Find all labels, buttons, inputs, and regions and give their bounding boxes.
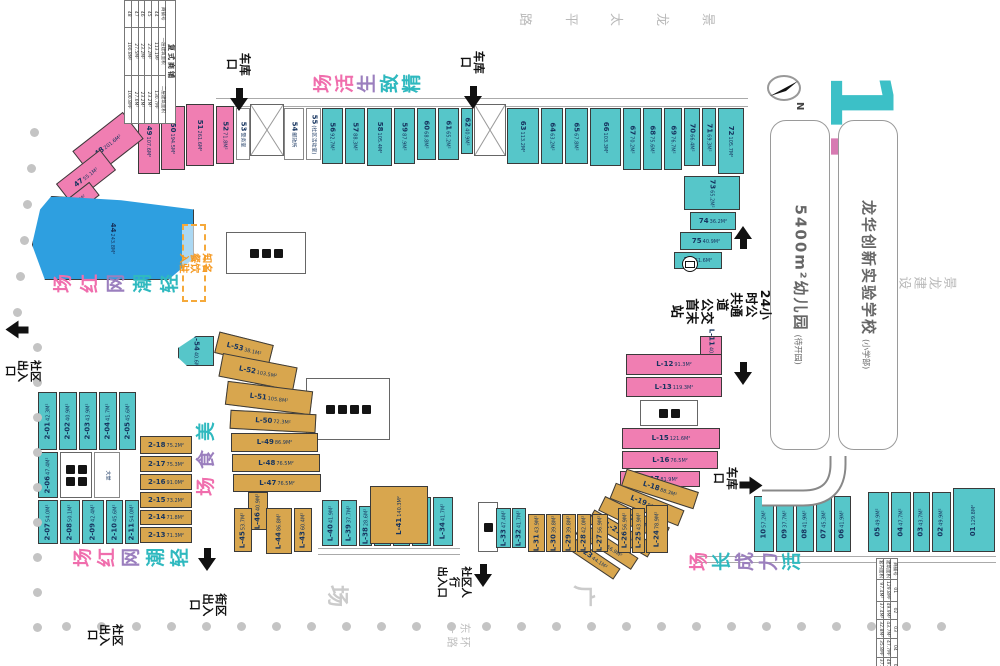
street-tree-dot — [412, 622, 421, 631]
unit-label: L-2939.8M² — [566, 515, 573, 551]
garage-entrance-label-1: 车库口 — [224, 42, 252, 86]
unit-65[interactable]: 6567.8M² — [565, 108, 588, 164]
unit-73[interactable]: 7365.2M² — [684, 176, 740, 210]
unit-61[interactable]: 6165.2M² — [438, 108, 459, 160]
unit-66[interactable]: 66103.3M² — [590, 108, 621, 166]
unit-56[interactable]: 5692.7M² — [322, 108, 343, 164]
street-tree-dot — [902, 622, 911, 631]
unit-63[interactable]: 63113.2M² — [507, 108, 539, 164]
unit-label: L-52103.5M² — [238, 365, 277, 379]
unit-62[interactable]: 6240.9M² — [461, 108, 473, 154]
unit-2-14[interactable]: 2-1471.8M² — [140, 510, 192, 525]
unit-label: L-4640.9M² — [255, 493, 262, 529]
unit-label: 0745.3M² — [821, 510, 828, 538]
unit-59[interactable]: 5987.9M² — [394, 108, 415, 164]
compass-icon: N — [764, 70, 808, 114]
unit-label: L-4553.7M² — [240, 512, 247, 548]
theme-label-jingzhi-shenghuo: 精致生活场 — [314, 70, 422, 96]
unit-04[interactable]: 0447.7M² — [891, 492, 911, 552]
unit-L-31[interactable]: L-3143.9M² — [528, 514, 545, 552]
street-tree-dot — [552, 622, 561, 631]
unit-2-11[interactable]: 2-1154.0M² — [125, 500, 139, 544]
unit-label: 7540.9M² — [692, 238, 720, 245]
unit-L-45[interactable]: L-4553.7M² — [234, 508, 252, 552]
unit-label: L-3143.9M² — [533, 515, 540, 551]
unit-label: 58105.4M² — [376, 121, 383, 152]
theme-label-qingchao-wanghong-top: 轻潮网红场 — [54, 270, 180, 296]
unit-2-17[interactable]: 2-1775.3M² — [140, 456, 192, 472]
garage-arrow-down-2 — [464, 86, 482, 109]
street-tree-dot — [762, 622, 771, 631]
unit-label: 2-1691.0M² — [148, 479, 184, 486]
unit-71[interactable]: 7169.3M² — [702, 108, 716, 166]
unit-label: 7436.2M² — [699, 218, 727, 225]
unit-L-39[interactable]: L-3937.7M² — [341, 500, 357, 546]
unit-05[interactable]: 0549.9M² — [868, 492, 889, 552]
unit-label: L-2478.9M² — [654, 511, 661, 547]
unit-2-16[interactable]: 2-1691.0M² — [140, 474, 192, 490]
kindergarten-building: 5400m²幼儿园(待开园) — [770, 120, 830, 450]
plaza-char-2: 广 — [569, 585, 601, 607]
unit-60[interactable]: 6068.8M² — [417, 108, 436, 160]
unit-52[interactable]: 5271.8M² — [216, 106, 234, 164]
unit-label: 7066.4M² — [689, 123, 696, 151]
unit-label: 2-0545.6M² — [124, 403, 131, 439]
unit-2-13[interactable]: 2-1371.3M² — [140, 527, 192, 543]
garage-entrance-label-3: 车库口 — [712, 456, 738, 500]
unit-label: 54邮政所 — [291, 121, 298, 147]
street-tree-dot — [622, 622, 631, 631]
theme-label-huoli-chengzhang: 活力成长场 — [690, 548, 802, 574]
unit-label: 6567.8M² — [573, 122, 580, 150]
street-exit-arrow — [198, 548, 216, 571]
unit-55[interactable]: 55(社区活动室) — [306, 108, 321, 160]
street-tree-dot — [692, 622, 701, 631]
unit-label: 51261.6M² — [197, 119, 204, 150]
unit-68[interactable]: 6875.6M² — [643, 108, 662, 170]
unit-label: 0549.9M² — [875, 508, 882, 536]
unit-label: 0249.9M² — [938, 508, 945, 536]
unit-label: L-4986.9M² — [257, 439, 293, 446]
floor-plan-canvas: 景龙太平路 景龙建设路 东环一路 场 广 1F N 5400m²幼儿园(待开园)… — [0, 0, 1000, 666]
unit-03[interactable]: 0343.7M² — [913, 492, 930, 552]
unit-2-05[interactable]: 2-0545.6M² — [119, 392, 136, 450]
unit-label: 53警务室 — [240, 121, 247, 147]
unit-大堂[interactable]: 大堂 — [94, 452, 120, 498]
unit-L-49[interactable]: L-4986.9M² — [231, 433, 318, 452]
restaurant-callout: 知名餐饮入驻 — [182, 224, 206, 302]
unit-label: L-3039.8M² — [550, 515, 557, 551]
unit-67[interactable]: 6770.2M² — [623, 108, 641, 170]
bus-terminal-label: 公交首末站 — [676, 274, 704, 348]
unit-L-27[interactable]: L-2756.9M² — [592, 514, 608, 552]
unit-label: 7365.2M² — [708, 179, 715, 207]
unit-72[interactable]: 72105.7M² — [718, 108, 744, 174]
street-tree-dot — [657, 622, 666, 631]
unit-label: L-13119.3M² — [655, 384, 694, 391]
street-tree-dot — [20, 236, 29, 245]
unit-label: 2-1154.0M² — [129, 504, 136, 540]
unit-01[interactable]: 01129.8M² — [953, 488, 995, 552]
unit-label: 2-1045.6M² — [111, 504, 118, 540]
street-tree-dot — [33, 518, 42, 527]
unit-label: L-3441.7M² — [440, 504, 447, 540]
unit-L-54[interactable]: L-5440.6M² — [178, 336, 214, 366]
street-tree-dot — [33, 448, 42, 457]
unit-L-43[interactable]: L-4360.4M² — [294, 508, 312, 552]
unit-label: 44243.8M² — [109, 222, 116, 253]
unit-69[interactable]: 6976.7M² — [664, 108, 682, 170]
bus-terminal-icon — [682, 256, 698, 272]
garage-ramp-duct — [758, 452, 868, 510]
street-tree-dot — [33, 588, 42, 597]
unit-label: 2-0647.4M² — [45, 457, 52, 493]
community-exit-left-arrow — [6, 321, 29, 339]
unit-L-28[interactable]: L-2842.0M² — [577, 514, 591, 552]
unit-label: L-1676.5M² — [652, 457, 688, 464]
passage-24h-label: 24小时公共通道 — [728, 250, 758, 360]
community-exit-bottom-label: 社区出入口 — [90, 604, 118, 666]
unit-label: 01129.8M² — [970, 504, 977, 535]
unit-label: L-4360.4M² — [300, 512, 307, 548]
street-tree-dot — [62, 622, 71, 631]
unit-label: 2-1875.2M² — [148, 442, 184, 449]
unit-53[interactable]: 53警务室 — [236, 108, 250, 160]
street-tree-dot — [727, 622, 736, 631]
street-tree-dot — [30, 128, 39, 137]
unit-label: 5987.9M² — [401, 122, 408, 150]
unit-2-18[interactable]: 2-1875.2M² — [140, 436, 192, 454]
unit-label: 49107.6M² — [146, 125, 153, 156]
unit-label: L-2543.9M² — [635, 513, 642, 549]
unit-label: 大堂 — [104, 470, 109, 480]
unit-74[interactable]: 7436.2M² — [690, 212, 736, 230]
unit-label: 0841.9M² — [802, 510, 809, 538]
street-tree-dot — [482, 622, 491, 631]
unit-label: 6770.2M² — [629, 125, 636, 153]
school-building: 龙华创新实验学校(小学部) — [838, 120, 898, 450]
stair-elevator-core-icon — [226, 232, 306, 274]
unit-label: L-15121.6M² — [652, 435, 691, 442]
street-tree-dot — [587, 622, 596, 631]
unit-label: 2-0942.4M² — [90, 504, 97, 540]
unit-label: L-2842.0M² — [581, 515, 588, 551]
unit-70[interactable]: 7066.4M² — [684, 108, 700, 166]
street-tree-dot — [16, 272, 25, 281]
street-tree-dot — [13, 308, 22, 317]
unit-75[interactable]: 7540.9M² — [680, 232, 732, 250]
unit-L-25[interactable]: L-2543.9M² — [632, 508, 645, 553]
unit-label: 6240.9M² — [464, 117, 471, 145]
unit-2-03[interactable]: 2-0343.9M² — [79, 392, 97, 450]
unit-54[interactable]: 54邮政所 — [284, 108, 304, 160]
unit-label: L-3937.7M² — [346, 505, 353, 541]
unit-label: 2-1775.3M² — [148, 461, 184, 468]
unit-L-47[interactable]: L-4776.5M² — [233, 474, 321, 492]
unit-label: 63113.2M² — [520, 120, 527, 151]
unit-L-12[interactable]: L-1291.3M² — [626, 354, 722, 375]
unit-label: 2-0343.9M² — [85, 403, 92, 439]
garage-entrance-label-2: 车库口 — [458, 40, 486, 84]
unit-label: 2-0240.9M² — [65, 403, 72, 439]
theme-label-meishi: 美食场 — [194, 422, 220, 496]
street-tree-dot — [342, 622, 351, 631]
unit-2-09[interactable]: 2-0942.4M² — [82, 500, 104, 544]
street-tree-dot — [23, 200, 32, 209]
unit-label: 0447.7M² — [898, 508, 905, 536]
unit-2-06[interactable]: 2-0647.4M² — [38, 452, 58, 498]
street-tree-dot — [33, 553, 42, 562]
street-tree-dot — [447, 622, 456, 631]
unit-L-24[interactable]: L-2478.9M² — [646, 505, 668, 553]
unit-label: L-5072.3M² — [255, 417, 291, 426]
unit-label: 6068.8M² — [423, 120, 430, 148]
unit-02[interactable]: 0249.9M² — [932, 492, 951, 552]
unit-label: 6976.7M² — [670, 125, 677, 153]
unit-L-41[interactable]: L-41140.3M² — [370, 486, 428, 544]
unit-label: L-3828.6M² — [362, 508, 369, 544]
unit-2-08[interactable]: 2-0850.1M² — [60, 500, 80, 544]
unit-L-34[interactable]: L-3441.7M² — [433, 497, 453, 546]
street-tree-dot — [377, 622, 386, 631]
unit-L-33[interactable]: L-3347.4M² — [496, 508, 511, 548]
unit-label: 5788.3M² — [352, 122, 359, 150]
road-top-label: 景龙太平路 — [518, 6, 714, 32]
unit-57[interactable]: 5788.3M² — [345, 108, 365, 164]
unit-label: 1057.2M² — [761, 510, 768, 538]
unit-label: 6463.2M² — [549, 122, 556, 150]
unit-label: 2-0441.7M² — [105, 403, 112, 439]
strip-area-table: 商铺号01020304050607080910建筑面积129.8M²49.9M²… — [876, 558, 898, 666]
unit-2-15[interactable]: 2-1573.2M² — [140, 492, 192, 508]
unit-2-02[interactable]: 2-0240.9M² — [59, 392, 77, 450]
unit-label: 6165.2M² — [445, 120, 452, 148]
unit-label: L-4876.5M² — [258, 460, 294, 467]
unit-label: 2-1471.8M² — [148, 514, 184, 521]
unit-L-40[interactable]: L-4041.9M² — [322, 500, 339, 546]
unit-L-32[interactable]: L-3241.7M² — [512, 508, 526, 548]
unit-2-10[interactable]: 2-1045.6M² — [106, 500, 123, 544]
unit-label: 0937.7M² — [782, 510, 789, 538]
unit-L-44[interactable]: L-4486.8M² — [266, 508, 292, 554]
unit-label: 72105.7M² — [728, 125, 735, 156]
unit-label: L-2756.9M² — [597, 515, 604, 551]
street-tree-dot — [832, 622, 841, 631]
plaza-char-1: 场 — [323, 585, 355, 607]
unit-label: 0343.7M² — [918, 508, 925, 536]
unit-label: L-3241.7M² — [516, 510, 523, 546]
unit-58[interactable]: 58105.4M² — [367, 108, 392, 166]
unit-L-29[interactable]: L-2939.8M² — [562, 514, 576, 552]
stair-elevator-core-icon — [60, 452, 92, 498]
unit-L-48[interactable]: L-4876.5M² — [232, 454, 320, 472]
street-tree-dot — [237, 622, 246, 631]
street-tree-dot — [132, 622, 141, 631]
unit-label: 5692.7M² — [329, 122, 336, 150]
unit-label: L-4776.5M² — [259, 480, 295, 487]
unit-L-26[interactable]: L-2656.9M² — [618, 508, 631, 553]
garage-arrow-down-1 — [230, 88, 248, 111]
road-bottom-label: 东环一路 — [442, 604, 474, 666]
street-tree-dot — [272, 622, 281, 631]
unit-label: 2-0850.1M² — [67, 504, 74, 540]
unit-label: L-4041.9M² — [327, 505, 334, 541]
street-tree-dot — [167, 622, 176, 631]
community-exit-left-label: 社区出入口 — [8, 340, 36, 402]
passage-arrow-up — [734, 226, 752, 249]
unit-label: L-51105.8M² — [249, 392, 288, 404]
stair-elevator-core-icon — [478, 502, 498, 552]
street-tree-dot — [517, 622, 526, 631]
unit-2-04[interactable]: 2-0441.7M² — [99, 392, 117, 450]
unit-label: 5271.8M² — [222, 121, 229, 149]
unit-L-50[interactable]: L-5072.3M² — [230, 410, 317, 433]
street-tree-dot — [797, 622, 806, 631]
unit-label: 0641.9M² — [839, 510, 846, 538]
unit-label: 6875.6M² — [649, 125, 656, 153]
unit-label: L-41140.3M² — [396, 496, 403, 535]
unit-label: L-2656.9M² — [621, 513, 628, 549]
unit-label: L-3347.4M² — [500, 510, 507, 546]
unit-L-30[interactable]: L-3039.8M² — [546, 514, 561, 552]
unit-2-01[interactable]: 2-0142.3M² — [38, 392, 57, 450]
unit-label: 7169.3M² — [706, 123, 713, 151]
unit-label: 2-0142.3M² — [44, 403, 51, 439]
unit-label: 50194.5M² — [170, 122, 177, 153]
unit-label: 2-1573.2M² — [148, 497, 184, 504]
street-exit-label: 街区出入口 — [192, 572, 222, 638]
unit-L-16[interactable]: L-1676.5M² — [622, 451, 718, 469]
street-tree-dot — [33, 483, 42, 492]
unit-64[interactable]: 6463.2M² — [541, 108, 563, 164]
unit-label: L-1291.3M² — [656, 361, 692, 368]
unit-label: 2-1371.3M² — [148, 532, 184, 539]
passage-arrow-down — [734, 362, 752, 385]
street-tree-dot — [867, 622, 876, 631]
unit-L-15[interactable]: L-15121.6M² — [622, 428, 720, 449]
duplex-area-table: 复式商铺商铺号一层建筑面积二层建筑面积44113.1M²130.7M²4523.… — [124, 0, 176, 124]
street-tree-dot — [33, 413, 42, 422]
street-tree-dot — [33, 623, 42, 632]
unit-label: 66103.3M² — [602, 121, 609, 152]
road-right-label: 景龙建设路 — [900, 206, 936, 372]
unit-76[interactable]: 7661.6M² — [674, 252, 722, 269]
stair-elevator-core-icon — [640, 400, 698, 426]
unit-label: 2-0754.0M² — [45, 504, 52, 540]
svg-text:N: N — [794, 102, 805, 110]
unit-label: 55(社区活动室) — [310, 114, 317, 154]
unit-L-13[interactable]: L-13119.3M² — [626, 377, 722, 397]
theme-label-qingchao-wanghong-bottom: 轻潮网红场 — [74, 544, 190, 570]
unit-51[interactable]: 51261.6M² — [186, 104, 214, 166]
garage-ramp — [474, 104, 506, 156]
unit-44[interactable]: 44243.8M² — [32, 196, 194, 280]
community-ped-exit-arrow — [474, 564, 492, 587]
street-tree-dot — [937, 622, 946, 631]
street-tree-dot — [27, 164, 36, 173]
stair-elevator-core-icon — [306, 378, 390, 440]
street-tree-dot — [307, 622, 316, 631]
unit-label: L-5440.6M² — [193, 333, 200, 369]
community-ped-exit-label: 社区人行 出入口 — [436, 552, 472, 612]
unit-label: L-4486.8M² — [276, 513, 283, 549]
garage-ramp — [250, 104, 284, 156]
